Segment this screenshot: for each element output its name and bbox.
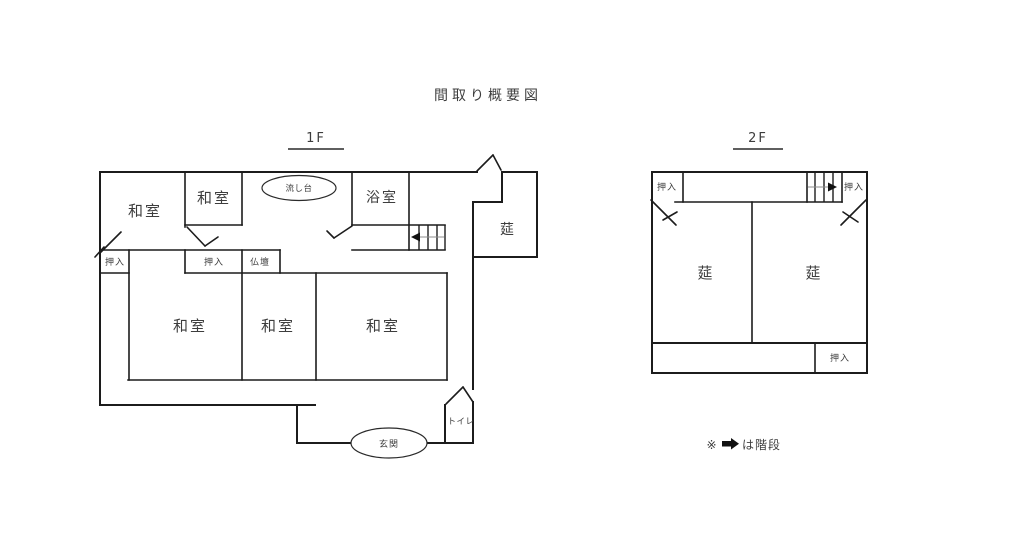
room-label-washitsu-bottom-right: 和室 xyxy=(366,317,400,335)
floor1-label: 1F xyxy=(306,131,326,146)
room-label-mushiro-left: 莚 xyxy=(697,264,714,282)
floor2-walls xyxy=(652,172,867,373)
room-label-sink: 流し台 xyxy=(285,183,312,194)
room-label-oshiire-left: 押入 xyxy=(105,256,125,268)
room-label-washitsu-bottom-mid: 和室 xyxy=(261,317,295,335)
room-label-washitsu-top-left: 和室 xyxy=(128,202,162,220)
room-label-oshiire-middle: 押入 xyxy=(204,256,224,268)
room-label-toilet: トイレ xyxy=(447,417,474,427)
floorplan-drawing: 間取り概要図 1F xyxy=(0,0,1024,555)
legend-suffix: は階段 xyxy=(742,437,781,452)
room-label-mushiro-right: 莚 xyxy=(805,264,822,282)
floorplan-page: 間取り概要図 1F xyxy=(0,0,1024,555)
floor2-door-swings xyxy=(651,200,866,225)
legend: ※ は階段 xyxy=(706,437,781,452)
room-label-butsudan: 仏壇 xyxy=(250,256,270,268)
room-label-oshiire-top-left: 押入 xyxy=(657,181,677,193)
floor2-label: 2F xyxy=(748,131,768,146)
room-label-oshiire-bottom-right: 押入 xyxy=(830,352,850,364)
room-label-entrance: 玄関 xyxy=(379,438,399,450)
floor1-plan: 1F xyxy=(95,131,537,458)
floor1-stairs-icon xyxy=(411,225,445,250)
floor1-room-labels: 和室 和室 流し台 浴室 莚 押入 押入 仏壇 和室 和室 和室 トイレ 玄関 xyxy=(105,183,516,450)
floor1-walls xyxy=(100,172,537,443)
page-title: 間取り概要図 xyxy=(434,88,542,104)
room-label-washitsu-top-small: 和室 xyxy=(197,189,231,207)
floor2-plan: 2F 押入 押 xyxy=(651,131,867,373)
room-label-washitsu-bottom-left: 和室 xyxy=(173,317,207,335)
floor2-room-labels: 押入 押入 莚 莚 押入 xyxy=(657,181,864,364)
room-label-oshiire-top-right: 押入 xyxy=(844,181,864,193)
room-label-bathroom: 浴室 xyxy=(366,189,398,206)
right-arrow-icon xyxy=(722,438,739,450)
legend-prefix: ※ xyxy=(706,438,717,452)
room-label-mushiro: 莚 xyxy=(500,222,516,238)
floor2-stairs-icon xyxy=(808,172,837,202)
